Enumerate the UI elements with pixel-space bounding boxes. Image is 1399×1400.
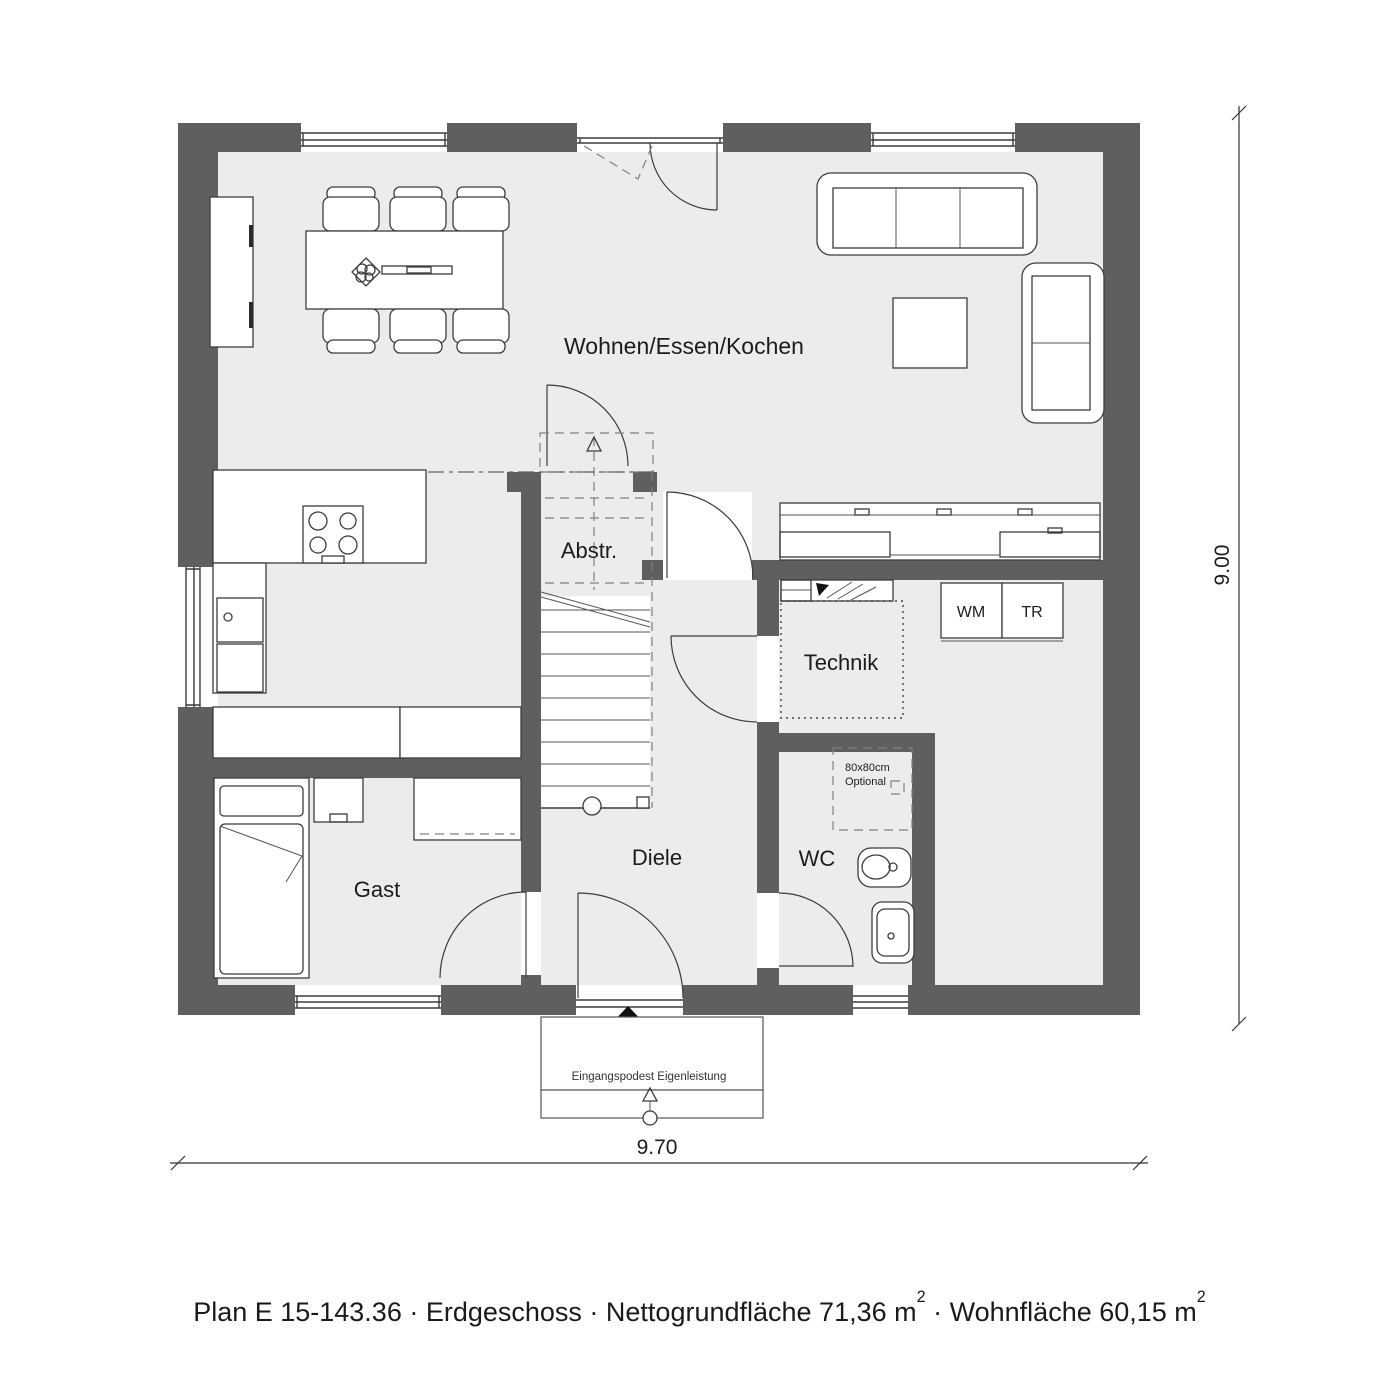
washbasin [872,902,914,963]
sofa-large [817,173,1037,255]
caption-sup-1: 2 [917,1288,926,1306]
label-hall: Diele [632,845,682,870]
dimension-height-value: 9.00 [1211,545,1234,586]
kitchen-lower-counter [213,707,400,758]
dimension-height-line [1232,106,1246,1031]
dining-chairs-bottom [323,309,509,353]
dining-chairs-top [323,187,509,231]
plan-caption: Plan E 15-143.36 · Erdgeschoss · Nettogr… [0,1297,1399,1328]
label-storage: Abstr. [561,538,617,563]
stair-newel-post [583,797,601,815]
window-dining [301,123,447,152]
nightstand [314,778,363,822]
toilet [858,848,911,887]
label-shower-size: 80x80cm [845,762,890,774]
window-living [871,123,1015,152]
window-guest [295,985,441,1015]
coffee-table [893,298,967,368]
floor-plan-canvas: Wohnen/Essen/Kochen Abstr. Technik WM TR… [0,0,1399,1400]
caption-text-2: · Wohnfläche 60,15 m [926,1297,1197,1327]
caption-sup-2: 2 [1197,1288,1206,1306]
pillow [220,786,303,816]
wardrobe [414,778,521,840]
label-utility: Technik [804,650,880,675]
label-wc: WC [799,846,836,871]
window-wc [853,985,908,1015]
label-guest: Gast [354,877,400,902]
label-entrance-note: Eingangspodest Eigenleistung [572,1071,727,1083]
label-washer: WM [957,604,985,621]
entrance [541,1006,763,1125]
wall-counter [780,503,1100,560]
window-kitchen [178,567,218,707]
dimension-width-value: 9.70 [637,1136,678,1159]
floor-plan: Wohnen/Essen/Kochen Abstr. Technik WM TR… [0,0,1399,1400]
label-shower-optional: Optional [845,776,886,788]
label-dryer: TR [1021,604,1042,621]
sideboard [210,197,253,347]
kitchen-sink [217,598,263,642]
caption-text-1: Plan E 15-143.36 · Erdgeschoss · Nettogr… [193,1297,916,1327]
label-living: Wohnen/Essen/Kochen [564,333,804,359]
